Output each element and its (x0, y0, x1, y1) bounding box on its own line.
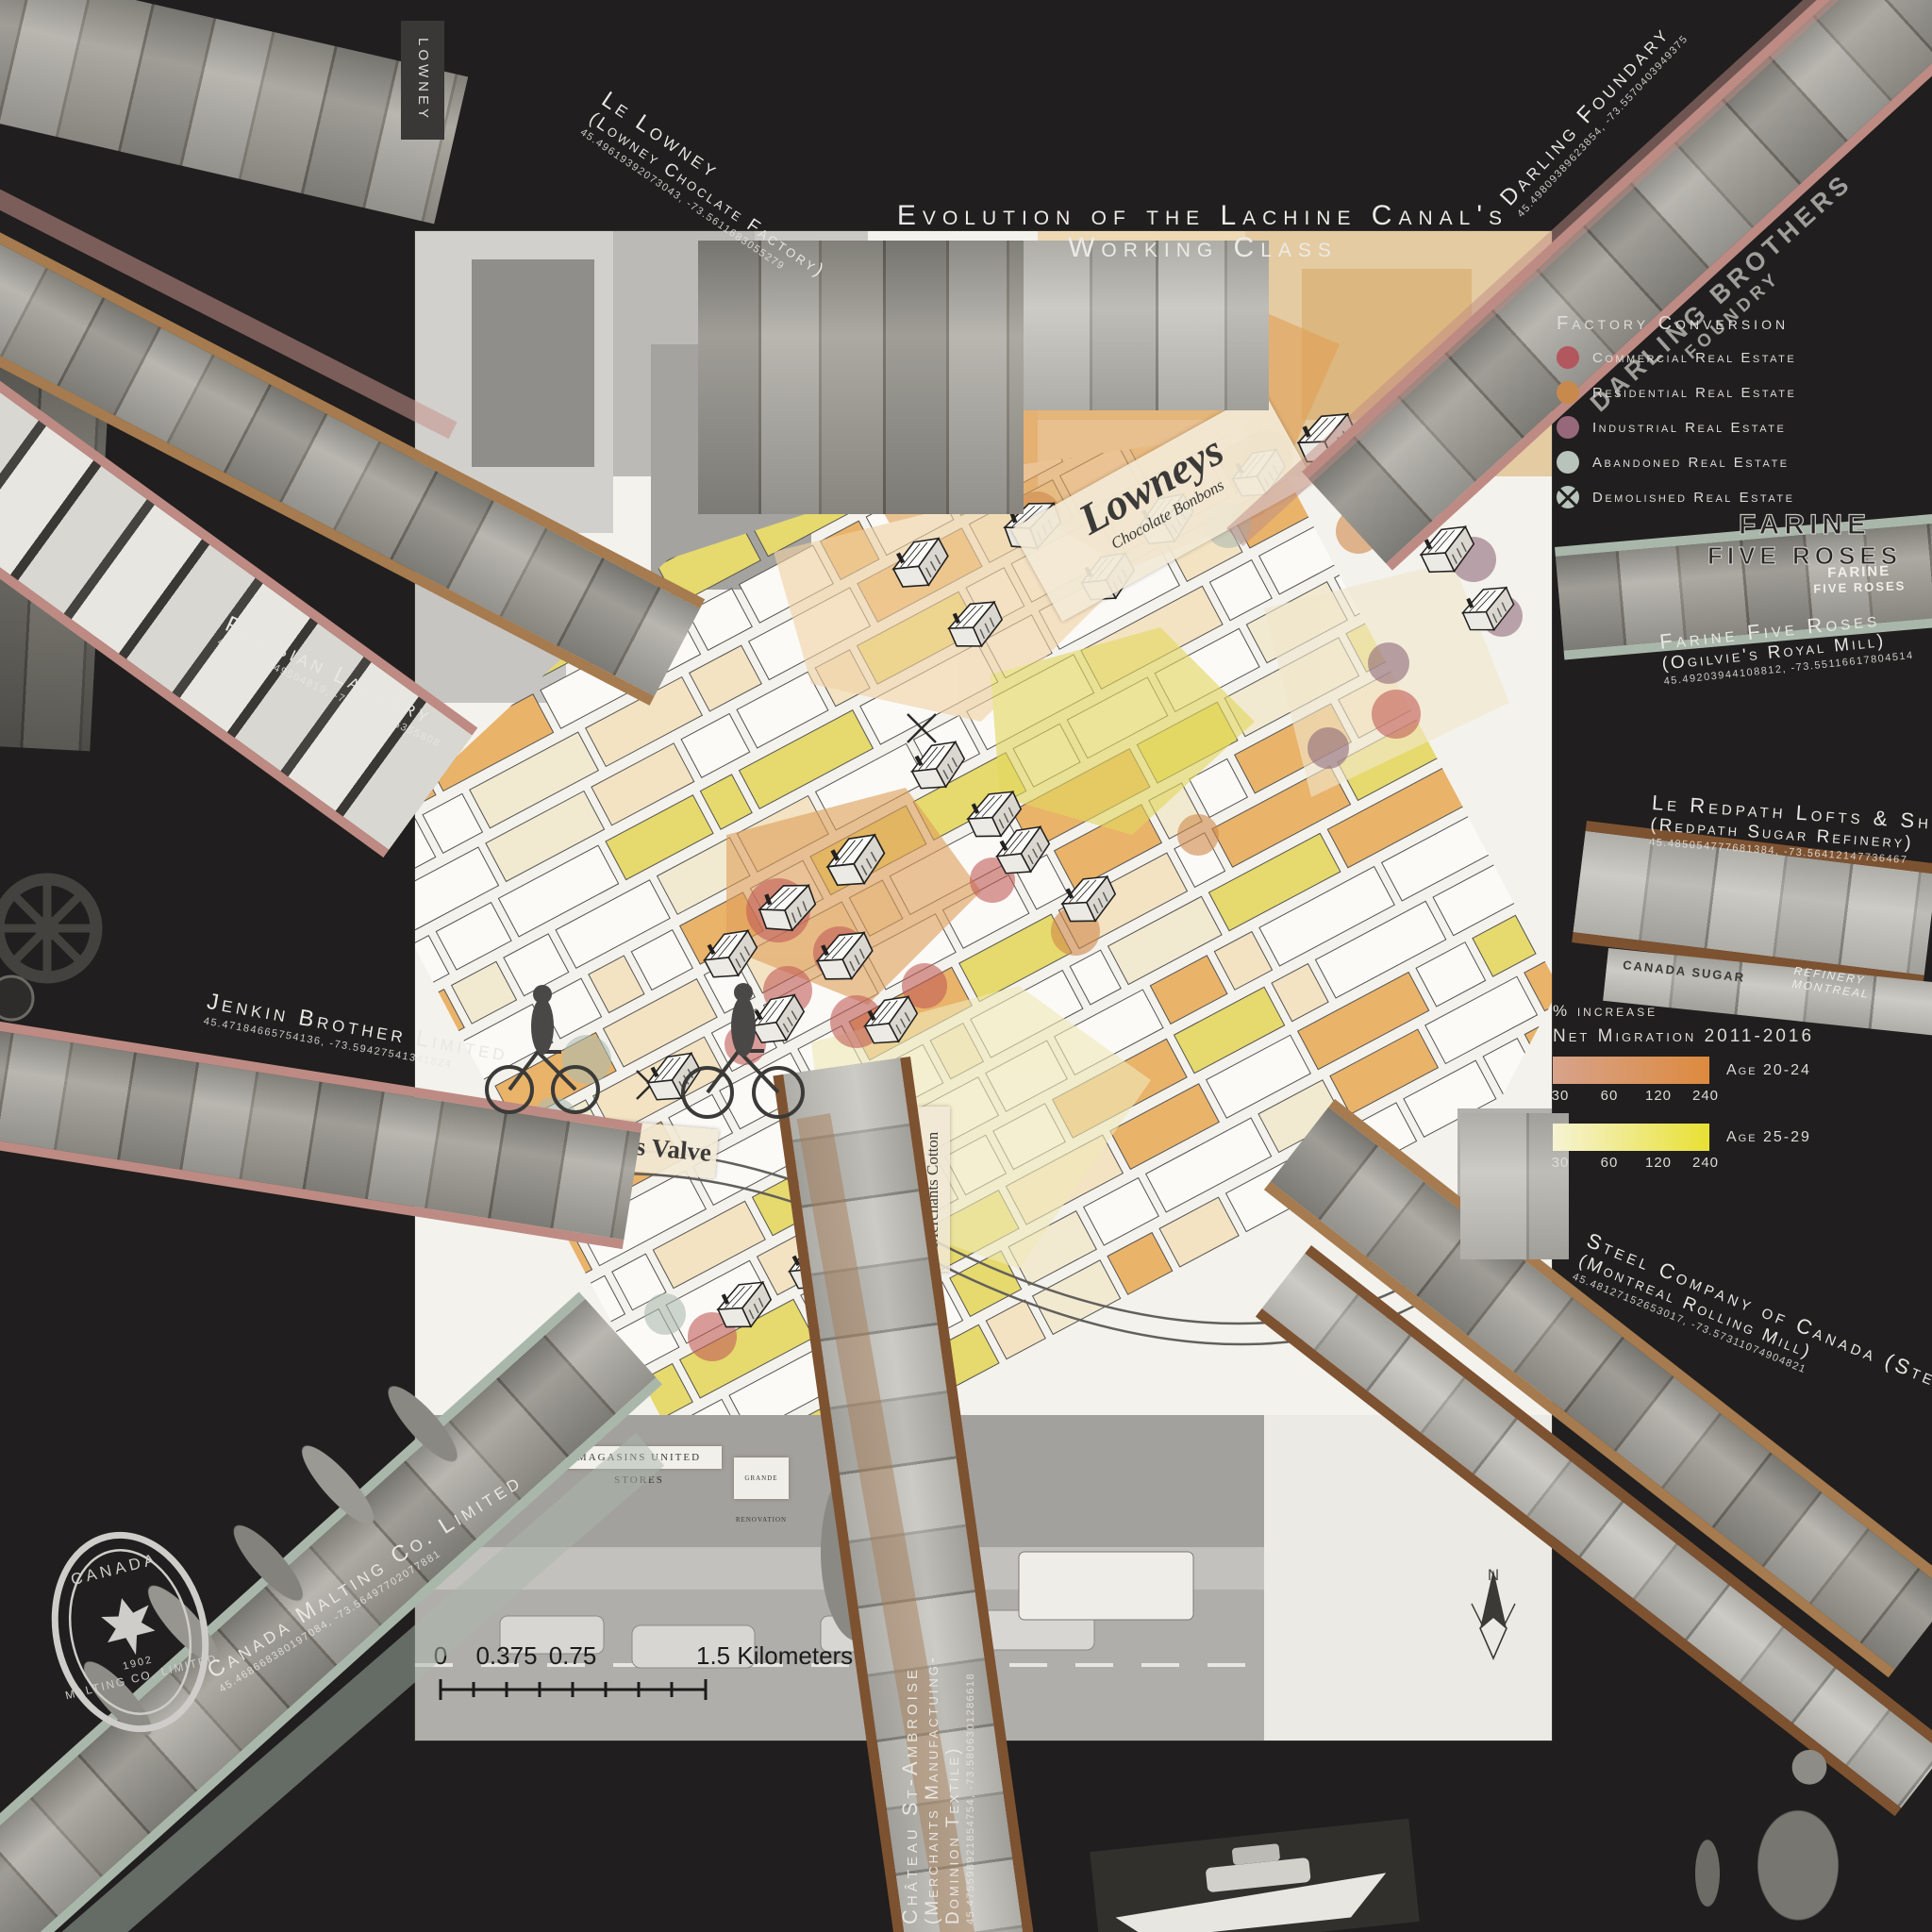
migration-bar-25-29-wrap: Age 25-29 30 60 120 240 (1553, 1124, 1814, 1174)
poster-title: Evolution of the Lachine Canal's Working… (854, 200, 1552, 264)
swatch-abandoned (1557, 451, 1579, 474)
bicycle-figures (472, 981, 868, 1123)
legend-net-migration: % increase Net Migration 2011-2016 Age 2… (1553, 1002, 1814, 1191)
tick-60a: 60 (1601, 1088, 1619, 1104)
migration-gradient-25-29 (1553, 1124, 1709, 1151)
scale-ticks (415, 1677, 736, 1702)
legend-label-residential: Residential Real Estate (1592, 385, 1796, 401)
migration-gradient-20-24 (1553, 1057, 1709, 1084)
legend-label-abandoned: Abandoned Real Estate (1592, 455, 1790, 471)
migration-ticks-25-29: 30 60 120 240 (1553, 1155, 1723, 1174)
scale-label-075: 0.75 (549, 1641, 597, 1671)
legend-label-commercial: Commercial Real Estate (1592, 350, 1796, 366)
legend-item-abandoned: Abandoned Real Estate (1557, 451, 1796, 474)
swatch-residential (1557, 381, 1579, 404)
north-arrow: N S (1462, 1566, 1524, 1698)
scale-bar: 0 0.375 0.75 1.5 Kilometers (415, 1641, 868, 1707)
legend-factory-conversion: Factory Conversion Commercial Real Estat… (1557, 313, 1796, 521)
legend-item-residential: Residential Real Estate (1557, 381, 1796, 404)
migration-legend-line1: % increase (1553, 1002, 1814, 1021)
tick-120a: 120 (1645, 1088, 1672, 1104)
legend-item-commercial: Commercial Real Estate (1557, 346, 1796, 369)
legend-label-demolished: Demolished Real Estate (1592, 490, 1794, 506)
tick-240b: 240 (1692, 1155, 1719, 1171)
photo-block-top-center-2 (1024, 241, 1269, 410)
tick-30a: 30 (1552, 1088, 1570, 1104)
valve-wheel-icon (0, 868, 130, 1028)
worker-figure (1651, 1736, 1932, 1932)
photo-block-top-center (698, 241, 1024, 514)
swatch-commercial (1557, 346, 1579, 369)
swatch-industrial (1557, 416, 1579, 439)
legend-factory-title: Factory Conversion (1557, 313, 1796, 335)
scale-label-0375: 0.375 (475, 1641, 537, 1671)
site-label-chateau: Château St-Ambroise (Merchants Manufactu… (898, 1655, 976, 1924)
migration-bar-20-24-wrap: Age 20-24 30 60 120 240 (1553, 1057, 1814, 1107)
legend-item-industrial: Industrial Real Estate (1557, 416, 1796, 439)
chateau-coords: 45.475598921854754, -73.5806301286618 (965, 1655, 976, 1924)
migration-legend-line2: Net Migration 2011-2016 (1553, 1026, 1814, 1047)
logo-text-canada: CANADA (69, 1550, 160, 1589)
boat-photo (1090, 1819, 1420, 1932)
chateau-name: Château St-Ambroise (898, 1655, 923, 1924)
renovation-sign: GRANDE RENOVATION (734, 1457, 789, 1499)
lowney-vertical-sign: LOWNEY (401, 21, 444, 140)
farine-sign-line2: FIVE ROSES (1696, 542, 1913, 571)
swatch-demolished (1557, 486, 1579, 508)
scale-label-15km: 1.5 Kilometers (696, 1641, 853, 1671)
chateau-subname-1: (Merchants Manufactuing- (923, 1655, 943, 1924)
migration-age-25-29: Age 25-29 (1726, 1129, 1811, 1146)
tick-30b: 30 (1552, 1155, 1570, 1171)
migration-ticks-20-24: 30 60 120 240 (1553, 1088, 1723, 1107)
legend-item-demolished: Demolished Real Estate (1557, 486, 1796, 508)
chateau-subname-2: Dominion Textile) (943, 1655, 964, 1924)
photo-strip-top-left (0, 0, 468, 224)
north-arrow-glyph (1462, 1566, 1524, 1662)
tick-60b: 60 (1601, 1155, 1619, 1171)
tick-240a: 240 (1692, 1088, 1719, 1104)
poster: Lowneys Chocolate Bonbons Jenkins Valve … (0, 0, 1932, 1932)
migration-age-20-24: Age 20-24 (1726, 1062, 1811, 1079)
tick-120b: 120 (1645, 1155, 1672, 1171)
legend-label-industrial: Industrial Real Estate (1592, 420, 1786, 436)
